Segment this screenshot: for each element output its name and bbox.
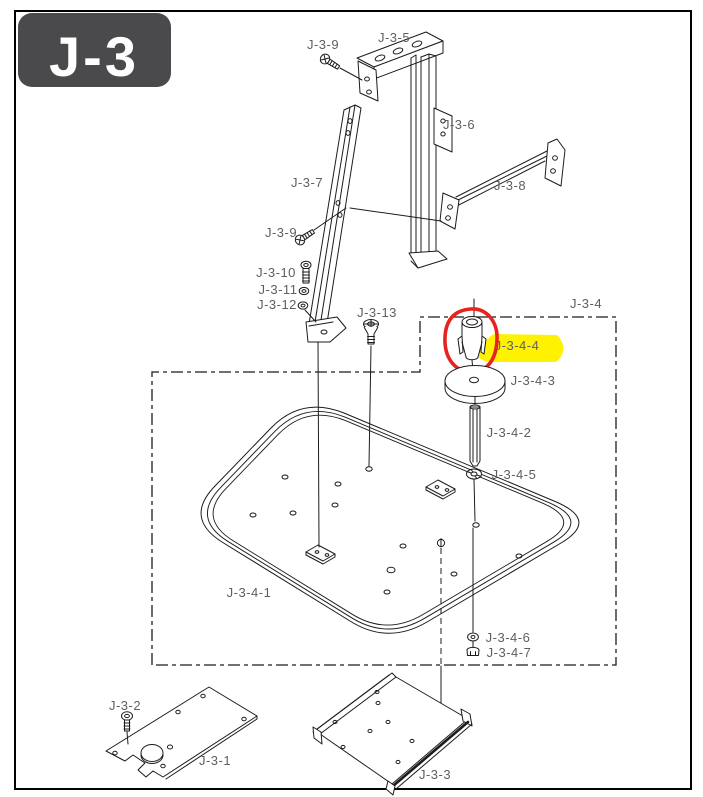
label-j-3-12: J-3-12 (257, 297, 297, 312)
leader-j-3-8 (350, 208, 441, 221)
screw-icon-j-3-9-top (318, 52, 362, 80)
title-block: J-3 (18, 13, 171, 88)
label-j-3-9-low: J-3-9 (265, 225, 297, 240)
label-j-3-10: J-3-10 (256, 265, 296, 280)
label-j-3-9-top: J-3-9 (307, 37, 339, 52)
label-j-3-3: J-3-3 (419, 767, 451, 782)
label-j-3-4-5: J-3-4-5 (492, 467, 537, 482)
page-title: J-3 (49, 25, 139, 88)
screw-top-view-icon (437, 539, 444, 548)
label-j-3-7: J-3-7 (291, 175, 323, 190)
nut-icon-j-3-4-7 (467, 647, 479, 655)
label-j-3-4-2: J-3-4-2 (487, 425, 532, 440)
part-j-3-8-bracket (350, 139, 565, 229)
label-j-3-4-4: J-3-4-4 (495, 338, 540, 353)
screw-icon-j-3-13 (364, 320, 379, 345)
label-j-3-5: J-3-5 (378, 30, 410, 45)
part-j-3-4-3-disc (445, 366, 505, 405)
screw-icon-j-3-10 (301, 261, 311, 283)
label-j-3-1: J-3-1 (199, 753, 231, 768)
part-j-3-4-2-pin (470, 405, 480, 466)
label-j-3-13: J-3-13 (357, 305, 397, 320)
parts-diagram-page: J-3 (0, 0, 703, 797)
part-j-3-7-bar (306, 105, 361, 342)
washer-icon-j-3-11 (299, 287, 309, 294)
label-j-3-8: J-3-8 (494, 178, 526, 193)
label-j-3-4-7: J-3-4-7 (487, 645, 532, 660)
washer-icon-j-3-4-6 (468, 633, 479, 641)
label-j-3-6: J-3-6 (443, 117, 475, 132)
label-j-3-4: J-3-4 (570, 296, 602, 311)
label-j-3-4-6: J-3-4-6 (486, 630, 531, 645)
label-j-3-4-1: J-3-4-1 (227, 585, 272, 600)
label-j-3-4-3: J-3-4-3 (511, 373, 556, 388)
label-j-3-11: J-3-11 (259, 282, 298, 297)
washer-icon-j-3-4-5 (467, 469, 482, 479)
washer-icon-j-3-12 (298, 302, 308, 309)
label-j-3-2: J-3-2 (109, 698, 141, 713)
part-j-3-6-bar (409, 54, 452, 268)
